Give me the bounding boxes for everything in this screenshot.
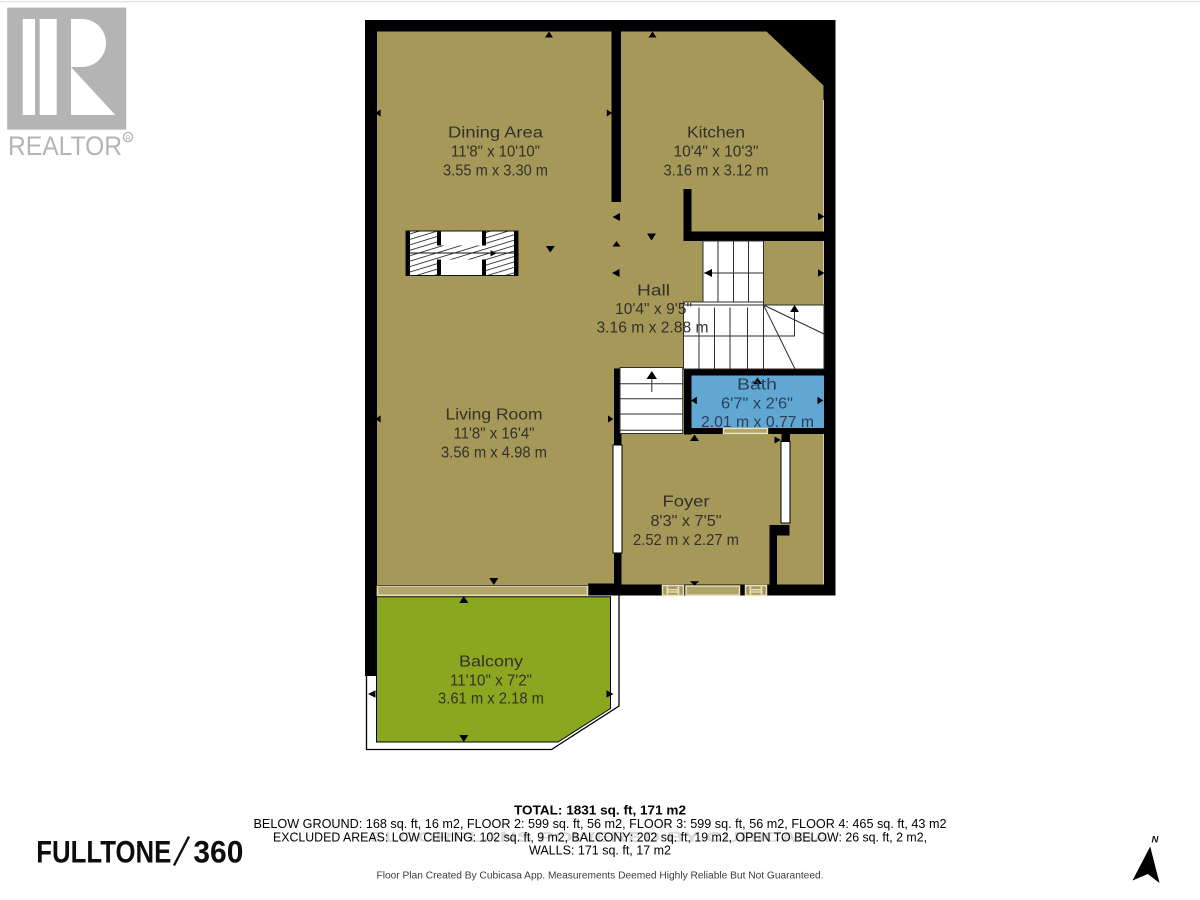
svg-text:10'4" x 9'5": 10'4" x 9'5" <box>615 301 692 318</box>
svg-text:360: 360 <box>193 834 243 870</box>
svg-text:3.61 m x 2.18 m: 3.61 m x 2.18 m <box>438 691 544 708</box>
svg-text:Kitchen: Kitchen <box>687 125 745 142</box>
svg-text:Balcony: Balcony <box>459 654 523 671</box>
svg-text:11'8" x 16'4": 11'8" x 16'4" <box>454 426 535 443</box>
svg-text:Living Room: Living Room <box>446 407 543 424</box>
svg-text:Dining Area: Dining Area <box>448 125 543 142</box>
svg-text:3.16 m x 3.12 m: 3.16 m x 3.12 m <box>664 163 769 180</box>
svg-text:11'10" x 7'2": 11'10" x 7'2" <box>450 673 532 690</box>
svg-text:REALTOR: REALTOR <box>8 131 122 161</box>
svg-text:Foyer: Foyer <box>663 494 710 511</box>
svg-text:11'8" x 10'10": 11'8" x 10'10" <box>451 144 540 161</box>
svg-text:3.16 m x 2.88 m: 3.16 m x 2.88 m <box>597 320 709 337</box>
svg-text:2.52 m x 2.27 m: 2.52 m x 2.27 m <box>633 532 739 549</box>
svg-text:10'4" x 10'3": 10'4" x 10'3" <box>674 144 759 161</box>
svg-text:3.55 m x 3.30 m: 3.55 m x 3.30 m <box>443 163 548 180</box>
svg-text:WALLS: 171 sq. ft, 17 m2: WALLS: 171 sq. ft, 17 m2 <box>529 844 671 858</box>
svg-text:EXCLUDED AREAS: LOW CEILING: 1: EXCLUDED AREAS: LOW CEILING: 102 sq. ft,… <box>273 831 927 845</box>
svg-text:6'7" x 2'6": 6'7" x 2'6" <box>721 396 793 413</box>
svg-text:3.56 m x 4.98 m: 3.56 m x 4.98 m <box>441 445 547 462</box>
svg-text:N: N <box>1152 835 1160 846</box>
svg-text:8'3" x 7'5": 8'3" x 7'5" <box>651 513 722 530</box>
svg-text:Floor Plan Created By Cubicasa: Floor Plan Created By Cubicasa App. Meas… <box>377 871 824 882</box>
svg-text:Hall: Hall <box>637 283 670 300</box>
svg-text:TOTAL: 1831 sq. ft, 171 m2: TOTAL: 1831 sq. ft, 171 m2 <box>514 804 686 818</box>
svg-text:2.01 m x 0.77 m: 2.01 m x 0.77 m <box>701 414 814 431</box>
svg-text:BELOW GROUND: 168 sq. ft, 16 m: BELOW GROUND: 168 sq. ft, 16 m2, FLOOR 2… <box>254 817 947 831</box>
svg-text:FULLTONE: FULLTONE <box>36 834 171 870</box>
svg-text:Bath: Bath <box>737 377 777 394</box>
svg-text:R: R <box>125 136 130 143</box>
